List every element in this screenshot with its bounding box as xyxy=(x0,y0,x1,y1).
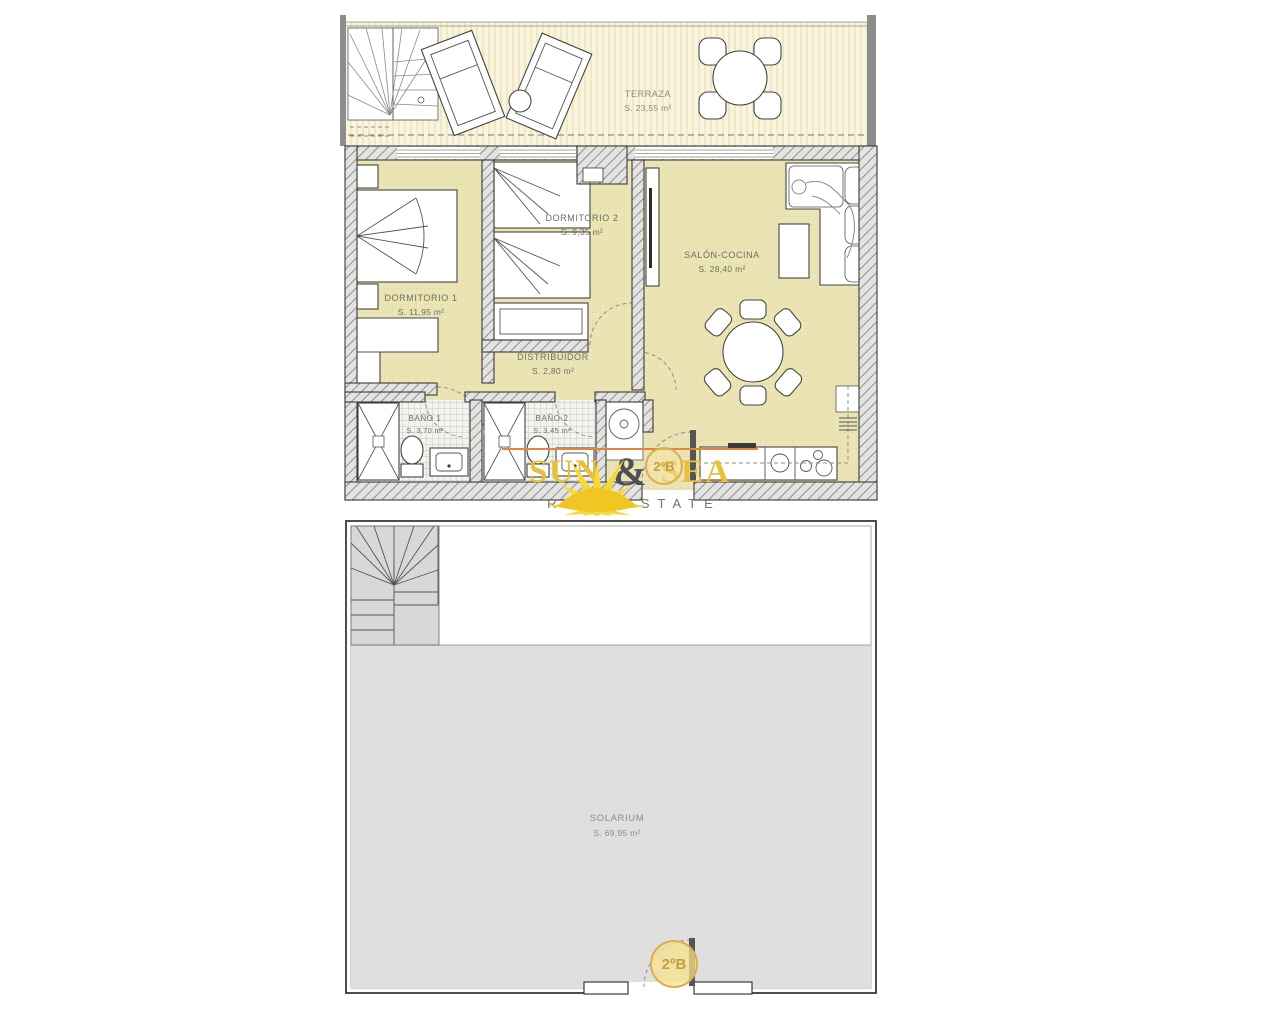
agency-logo: SUN & SEA REAL ESTATE xyxy=(502,448,758,511)
sink-icon xyxy=(430,448,468,476)
lower-floor-plan xyxy=(346,521,876,996)
coffee-table-icon xyxy=(779,224,809,278)
upper-floor-plan xyxy=(345,146,877,500)
room-label-solarium: SOLARIUMS. 69,95 m² xyxy=(590,812,644,840)
toilet-icon xyxy=(401,436,423,477)
side-table-icon xyxy=(509,90,531,112)
single-bed-icon xyxy=(494,232,590,298)
dresser-icon xyxy=(494,303,588,340)
unit-badge: 2ºB xyxy=(645,447,683,485)
room-label-salon: SALÓN-COCINAS. 28,40 m² xyxy=(684,249,760,276)
terrace-area xyxy=(340,15,876,146)
room-label-dormitorio1: DORMITORIO 1S. 11,95 m² xyxy=(384,292,457,319)
room-label-bano1: BAÑO 1S. 3,70 m² xyxy=(406,413,444,437)
unit-badge: 2ºB xyxy=(650,940,698,988)
terrace-stairs-icon xyxy=(348,28,438,136)
room-label-dormitorio2: DORMITORIO 2S. 9,35 m² xyxy=(545,212,618,239)
tv-unit-icon xyxy=(646,168,659,286)
shower-icon xyxy=(358,403,399,480)
solarium-stairs-icon xyxy=(351,526,439,645)
floor-plan-page: TERRAZAS. 23,55 m² DORMITORIO 1S. 11,95 … xyxy=(0,0,1280,1024)
room-label-bano2: BAÑO 2S. 3,45 m² xyxy=(533,413,571,437)
room-label-distribuidor: DISTRIBUIDORS. 2,80 m² xyxy=(517,351,589,378)
room-label-terraza: TERRAZAS. 23,55 m² xyxy=(624,88,671,115)
